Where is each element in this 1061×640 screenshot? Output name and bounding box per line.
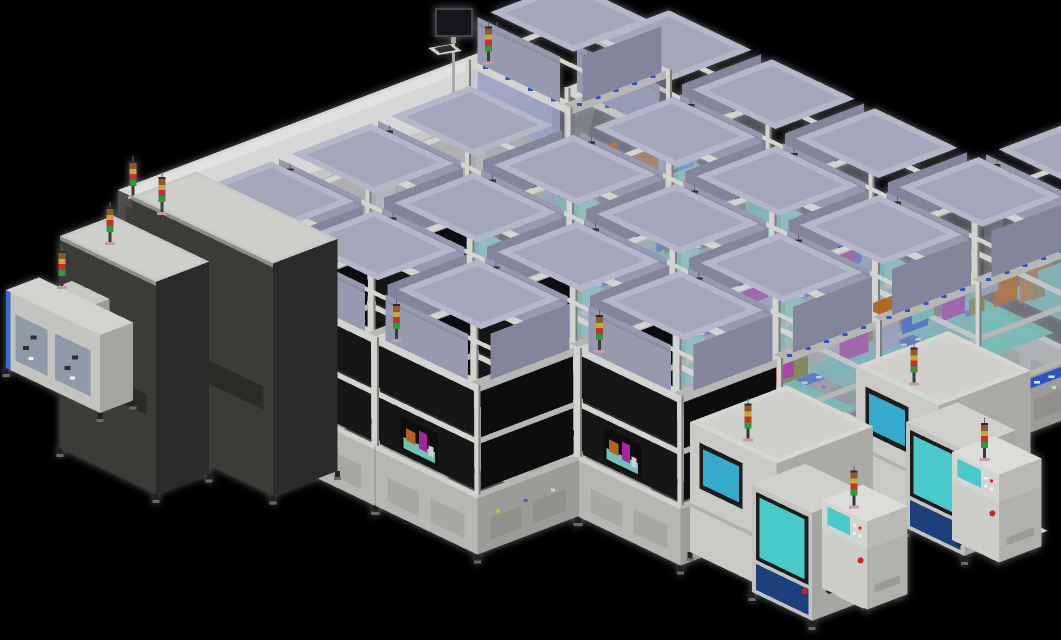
foot-pad bbox=[3, 374, 10, 377]
tower-antenna bbox=[488, 22, 489, 27]
tower-lamp bbox=[745, 416, 752, 422]
tower-pole bbox=[747, 428, 750, 438]
tower-antenna bbox=[110, 202, 111, 207]
tower-antenna bbox=[495, 261, 496, 266]
foot bbox=[207, 474, 212, 481]
tower-lamp bbox=[745, 405, 752, 411]
tower-lamp bbox=[107, 220, 114, 226]
foot-pad bbox=[130, 406, 137, 409]
tower-cap bbox=[107, 207, 114, 209]
tower-base bbox=[849, 505, 859, 508]
tower-pole bbox=[983, 448, 986, 458]
tower-base bbox=[484, 62, 494, 65]
detail bbox=[1052, 386, 1056, 389]
tower-lamp bbox=[130, 174, 137, 180]
tower-antenna bbox=[497, 22, 498, 27]
tower-lamp bbox=[911, 366, 918, 372]
tower-lamp bbox=[59, 253, 66, 259]
foot bbox=[688, 552, 693, 559]
tower-pole bbox=[109, 232, 112, 242]
tower-base bbox=[57, 286, 67, 289]
tower-pole bbox=[487, 52, 490, 62]
foot bbox=[153, 494, 158, 501]
console-button bbox=[858, 527, 861, 530]
tower-lamp bbox=[981, 431, 988, 436]
tower-base bbox=[980, 458, 990, 461]
tower-cap bbox=[850, 470, 857, 472]
tower-lamp bbox=[485, 35, 492, 40]
detail bbox=[551, 489, 555, 492]
tower-lamp bbox=[485, 46, 492, 52]
frame-post-shade bbox=[377, 336, 379, 446]
foot bbox=[335, 471, 340, 478]
rail-dash bbox=[577, 103, 582, 106]
detail bbox=[72, 356, 78, 360]
frame-post-shade bbox=[580, 347, 582, 457]
tower-cap bbox=[485, 27, 492, 29]
tower-antenna bbox=[591, 137, 592, 142]
foot bbox=[750, 592, 755, 599]
frame-post-shade bbox=[479, 385, 481, 495]
foot-pad bbox=[206, 480, 213, 483]
console-button bbox=[853, 532, 856, 535]
detail bbox=[64, 366, 70, 370]
tower-lamp bbox=[850, 483, 857, 489]
face bbox=[100, 322, 133, 413]
estop-button bbox=[858, 557, 864, 563]
tower-cap bbox=[911, 347, 918, 349]
tower-lamp bbox=[596, 328, 603, 334]
console-button bbox=[853, 524, 856, 527]
frame-post-shade bbox=[682, 396, 684, 506]
detail bbox=[30, 336, 36, 340]
tower-base bbox=[105, 242, 115, 245]
tower-antenna bbox=[698, 272, 699, 277]
face bbox=[622, 442, 630, 464]
tower-lamp bbox=[159, 185, 166, 190]
foot bbox=[271, 496, 276, 503]
tower-lamp bbox=[745, 411, 752, 416]
foot-pad bbox=[961, 562, 968, 565]
foot-pad bbox=[749, 598, 756, 601]
tower-lamp bbox=[981, 436, 988, 442]
face bbox=[273, 239, 337, 496]
tower-antenna bbox=[794, 148, 795, 153]
tower-pole bbox=[161, 202, 164, 212]
foot-pad bbox=[97, 419, 104, 422]
tower-antenna bbox=[914, 342, 915, 347]
foot bbox=[374, 506, 379, 513]
tower-antenna bbox=[997, 159, 998, 164]
tower-lamp bbox=[130, 180, 137, 186]
tower-lamp bbox=[59, 259, 66, 264]
scene-canvas[interactable] bbox=[0, 0, 1061, 640]
console-button bbox=[984, 485, 987, 488]
console-button bbox=[990, 479, 993, 482]
foot bbox=[4, 368, 9, 375]
tower-lamp bbox=[485, 40, 492, 46]
console-button bbox=[858, 535, 861, 538]
tower-pole bbox=[913, 372, 916, 382]
recycle-glyph bbox=[70, 377, 75, 380]
foot bbox=[678, 566, 683, 573]
tower-lamp bbox=[393, 306, 400, 312]
tower-antenna bbox=[392, 212, 393, 217]
foot bbox=[577, 517, 582, 524]
tower-lamp bbox=[159, 190, 166, 196]
tower-base bbox=[392, 339, 402, 342]
foot bbox=[98, 413, 103, 420]
recycle-glyph bbox=[29, 357, 34, 360]
tower-antenna bbox=[133, 156, 134, 161]
tower-cap bbox=[130, 161, 137, 163]
foot-pad bbox=[474, 561, 481, 564]
rail-dash bbox=[986, 278, 991, 281]
tower-lamp bbox=[130, 169, 137, 174]
tower-lamp bbox=[981, 442, 988, 448]
foot-pad bbox=[687, 558, 694, 561]
foot-pad bbox=[152, 500, 159, 503]
foot-pad bbox=[57, 454, 64, 457]
detail bbox=[23, 346, 29, 350]
tower-antenna bbox=[389, 126, 390, 131]
tower-antenna bbox=[396, 299, 397, 304]
foot-pad bbox=[809, 627, 816, 630]
tower-pole bbox=[61, 276, 64, 286]
tower-lamp bbox=[159, 196, 166, 202]
tower-lamp bbox=[107, 226, 114, 232]
conveyor-dash bbox=[1049, 376, 1055, 379]
foot-pad bbox=[270, 502, 277, 505]
tower-lamp bbox=[130, 163, 137, 169]
tower-lamp bbox=[745, 422, 752, 428]
tower-lamp bbox=[59, 264, 66, 270]
tower-antenna bbox=[289, 163, 290, 168]
tower-lamp bbox=[911, 349, 918, 355]
tower-pole bbox=[395, 329, 398, 339]
tower-cap bbox=[393, 304, 400, 306]
tower-antenna bbox=[984, 418, 985, 423]
tower-lamp bbox=[393, 317, 400, 323]
detail bbox=[496, 510, 500, 513]
tower-lamp bbox=[393, 312, 400, 317]
estop-button bbox=[802, 588, 808, 594]
foot bbox=[58, 448, 63, 455]
foot-pad bbox=[373, 512, 380, 515]
tower-antenna bbox=[599, 310, 600, 315]
tower-cap bbox=[745, 403, 752, 405]
tower-antenna bbox=[748, 398, 749, 403]
foot bbox=[475, 555, 480, 562]
monitor-screen bbox=[435, 8, 473, 37]
tower-base bbox=[157, 212, 167, 215]
console-button bbox=[990, 487, 993, 490]
tower-cap bbox=[59, 251, 66, 253]
tower-lamp bbox=[850, 489, 857, 495]
tower-antenna bbox=[162, 172, 163, 177]
tower-antenna bbox=[595, 224, 596, 229]
tower-lamp bbox=[596, 317, 603, 323]
foot-pad bbox=[334, 477, 341, 480]
tower-pole bbox=[852, 495, 855, 505]
conveyor-dash bbox=[1034, 381, 1040, 384]
tower-lamp bbox=[107, 209, 114, 215]
scene-root bbox=[3, 0, 1061, 630]
rail-dash bbox=[787, 354, 792, 357]
monitor-panel bbox=[437, 10, 471, 35]
tower-antenna bbox=[694, 186, 695, 191]
tower-pole bbox=[132, 186, 135, 196]
tower-lamp bbox=[159, 179, 166, 185]
detail bbox=[524, 499, 528, 502]
tower-lamp bbox=[59, 270, 66, 276]
foot bbox=[131, 400, 136, 407]
tower-antenna bbox=[492, 175, 493, 180]
tower-lamp bbox=[911, 355, 918, 360]
tower-lamp bbox=[393, 323, 400, 329]
tower-antenna bbox=[897, 197, 898, 202]
tower-lamp bbox=[485, 29, 492, 35]
rail-dash bbox=[887, 316, 892, 319]
foot-pad bbox=[677, 572, 684, 575]
foot bbox=[810, 621, 815, 628]
tower-base bbox=[743, 438, 753, 441]
tower-lamp bbox=[107, 215, 114, 220]
estop-button bbox=[989, 510, 995, 516]
face bbox=[6, 290, 11, 370]
foot bbox=[962, 556, 967, 563]
tower-antenna bbox=[62, 246, 63, 251]
tower-lamp bbox=[981, 425, 988, 431]
factory-3d-viewport[interactable] bbox=[0, 0, 1061, 640]
tower-antenna bbox=[691, 99, 692, 104]
face bbox=[419, 431, 427, 453]
tower-cap bbox=[596, 315, 603, 317]
tower-cap bbox=[159, 177, 166, 179]
tower-base bbox=[595, 350, 605, 353]
tower-lamp bbox=[911, 360, 918, 366]
face bbox=[156, 262, 209, 494]
tower-pole bbox=[598, 340, 601, 350]
tower-cap bbox=[981, 423, 988, 425]
tower-antenna bbox=[853, 465, 854, 470]
tower-lamp bbox=[596, 323, 603, 328]
console-button bbox=[984, 477, 987, 480]
tower-antenna bbox=[798, 235, 799, 240]
tower-lamp bbox=[850, 472, 857, 478]
foot-pad bbox=[576, 523, 583, 526]
tower-base bbox=[909, 382, 919, 385]
tower-lamp bbox=[596, 334, 603, 340]
tower-lamp bbox=[850, 478, 857, 483]
